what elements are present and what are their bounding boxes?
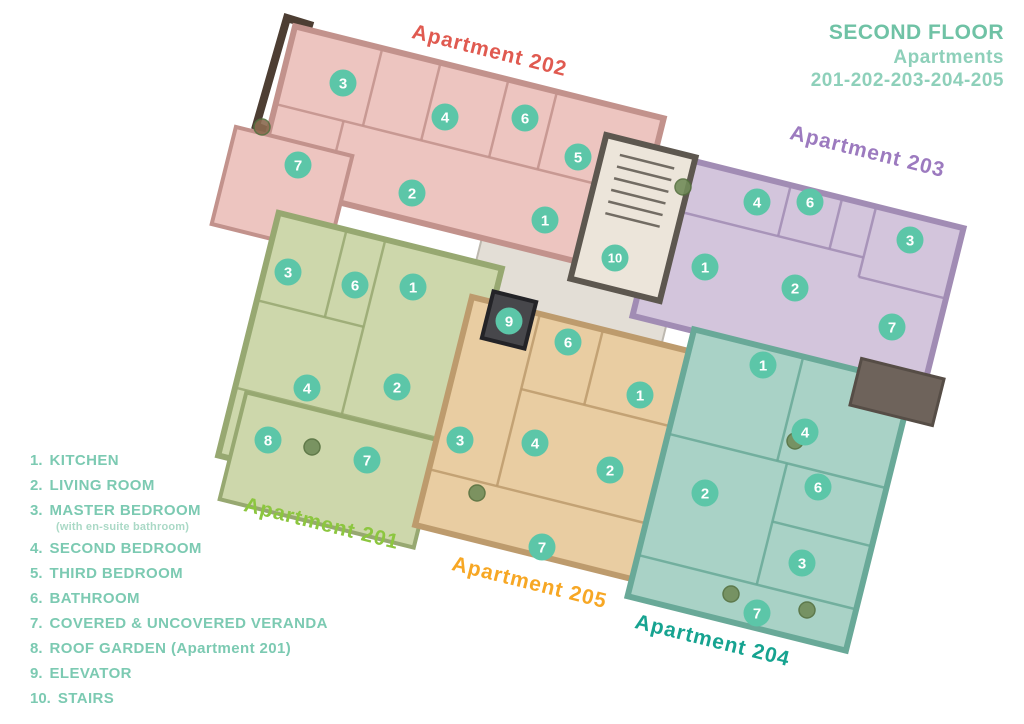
- legend-item-9: 9.ELEVATOR: [30, 665, 460, 682]
- room-badge-number: 4: [753, 194, 762, 211]
- room-badge-number: 7: [294, 157, 302, 174]
- room-badge-number: 7: [888, 319, 896, 336]
- legend-item-label: ELEVATOR: [50, 665, 132, 682]
- legend-item-number: 1.: [30, 452, 43, 469]
- legend-item-label: COVERED & UNCOVERED VERANDA: [50, 615, 328, 632]
- room-legend: 1.KITCHEN2.LIVING ROOM3.MASTER BEDROOM(w…: [30, 452, 460, 715]
- legend-item-number: 5.: [30, 565, 43, 582]
- legend-item-number: 4.: [30, 540, 43, 557]
- room-badge-number: 1: [701, 259, 709, 276]
- room-badge-number: 3: [906, 232, 914, 249]
- plant-icon: [254, 119, 270, 135]
- legend-item-5: 5.THIRD BEDROOM: [30, 565, 460, 582]
- legend-item-label: THIRD BEDROOM: [50, 565, 184, 582]
- plant-icon: [799, 602, 815, 618]
- floorplan-page: 34657214631273614287613427146237910Apart…: [0, 0, 1024, 724]
- room-badge-number: 3: [798, 555, 806, 572]
- room-badge-number: 10: [608, 251, 622, 266]
- apartment-203-label: Apartment 203: [788, 121, 948, 182]
- legend-item-label: SECOND BEDROOM: [50, 540, 202, 557]
- legend-item-number: 9.: [30, 665, 43, 682]
- plant-icon: [675, 179, 691, 195]
- legend-item-10: 10.STAIRS: [30, 690, 460, 707]
- legend-item-note: (with en-suite bathroom): [56, 521, 460, 533]
- apartment-numbers-subtitle: 201-202-203-204-205: [811, 69, 1004, 92]
- room-badge-number: 3: [456, 432, 464, 449]
- legend-item-number: 3.: [30, 502, 43, 519]
- room-badge-number: 7: [753, 605, 761, 622]
- legend-item-number: 8.: [30, 640, 43, 657]
- legend-item-label: STAIRS: [58, 690, 114, 707]
- legend-item-4: 4.SECOND BEDROOM: [30, 540, 460, 557]
- room-badge-number: 9: [505, 313, 513, 330]
- legend-item-2: 2.LIVING ROOM: [30, 477, 460, 494]
- room-badge-number: 5: [574, 149, 582, 166]
- legend-item-label: KITCHEN: [50, 452, 119, 469]
- room-badge-number: 4: [531, 435, 540, 452]
- room-badge-number: 2: [791, 280, 799, 297]
- legend-item-3: 3.MASTER BEDROOM: [30, 502, 460, 519]
- room-badge-number: 1: [759, 357, 767, 374]
- legend-item-label: MASTER BEDROOM: [50, 502, 201, 519]
- room-badge-number: 6: [564, 334, 572, 351]
- room-badge-number: 3: [339, 75, 347, 92]
- room-badge-number: 2: [393, 379, 401, 396]
- legend-item-number: 10.: [30, 690, 51, 707]
- room-badge-number: 4: [801, 424, 810, 441]
- room-badge-number: 6: [814, 479, 822, 496]
- room-badge-number: 4: [303, 380, 312, 397]
- legend-item-label: LIVING ROOM: [50, 477, 155, 494]
- legend-item-1: 1.KITCHEN: [30, 452, 460, 469]
- room-badge-number: 7: [538, 539, 546, 556]
- page-subtitle: Apartments: [811, 46, 1004, 69]
- legend-item-label: BATHROOM: [50, 590, 140, 607]
- room-badge-number: 1: [541, 212, 549, 229]
- legend-item-number: 2.: [30, 477, 43, 494]
- legend-item-number: 7.: [30, 615, 43, 632]
- page-title: SECOND FLOOR: [811, 20, 1004, 46]
- room-badge-number: 2: [701, 485, 709, 502]
- room-badge-number: 4: [441, 109, 450, 126]
- page-title-block: SECOND FLOOR Apartments 201-202-203-204-…: [811, 20, 1004, 92]
- room-badge-number: 1: [636, 387, 644, 404]
- room-badge-number: 3: [284, 264, 292, 281]
- room-badge-number: 6: [806, 194, 814, 211]
- legend-item-label: ROOF GARDEN (Apartment 201): [50, 640, 292, 657]
- room-badge-number: 6: [521, 110, 529, 127]
- legend-item-7: 7.COVERED & UNCOVERED VERANDA: [30, 615, 460, 632]
- plant-icon: [469, 485, 485, 501]
- legend-item-number: 6.: [30, 590, 43, 607]
- room-badge-number: 6: [351, 277, 359, 294]
- room-badge-number: 8: [264, 432, 272, 449]
- legend-item-6: 6.BATHROOM: [30, 590, 460, 607]
- room-badge-number: 1: [409, 279, 417, 296]
- room-badge-number: 2: [408, 185, 416, 202]
- legend-item-8: 8.ROOF GARDEN (Apartment 201): [30, 640, 460, 657]
- plant-icon: [723, 586, 739, 602]
- room-badge-number: 2: [606, 462, 614, 479]
